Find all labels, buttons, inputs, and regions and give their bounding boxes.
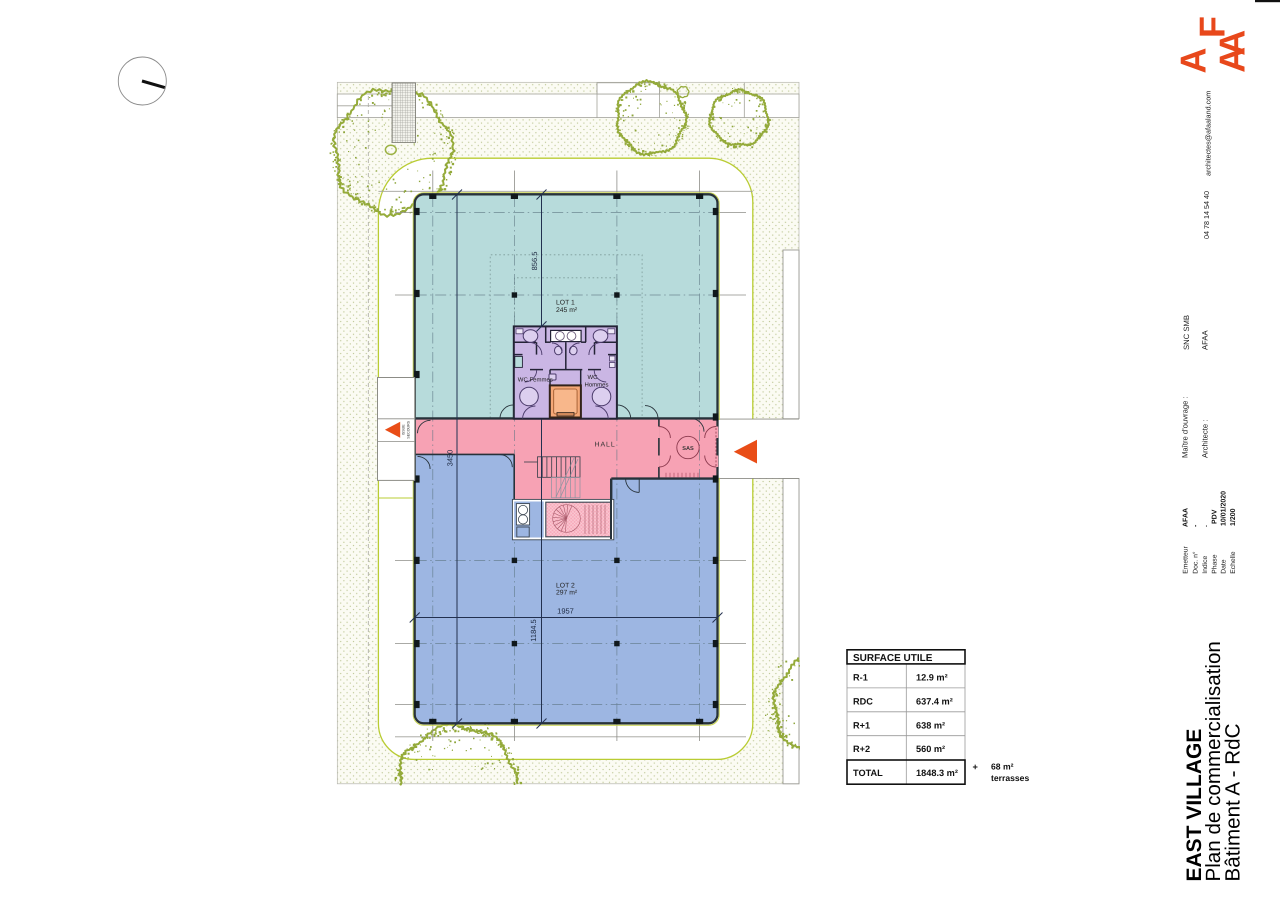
svg-text:Indice: Indice [1202,555,1209,573]
svg-text:SNC SMB: SNC SMB [1182,315,1191,350]
svg-text:PDV: PDV [1211,509,1218,524]
svg-text:245 m²: 245 m² [556,307,578,314]
svg-text:SAS: SAS [682,446,694,452]
svg-text:Phase: Phase [1211,554,1218,573]
svg-text:Hommes: Hommes [585,382,609,389]
svg-text:A: A [1173,48,1214,74]
svg-text:AFAA: AFAA [1201,329,1210,350]
svg-text:1/200: 1/200 [1229,508,1237,526]
svg-text:terrasses: terrasses [991,773,1029,783]
svg-text:WC: WC [588,374,599,381]
svg-text:-: - [1193,524,1200,527]
svg-text:560 m²: 560 m² [916,744,945,754]
svg-text:+: + [973,762,978,772]
svg-text:04 78 14 54 40: 04 78 14 54 40 [1202,191,1211,239]
svg-text:637.4 m²: 637.4 m² [916,696,953,706]
svg-text:Doc. n°: Doc. n° [1193,551,1200,574]
svg-text:ISSUE: ISSUE [402,424,406,435]
svg-text:12.9 m²: 12.9 m² [916,673,948,683]
svg-text:Maître d'ouvrage :: Maître d'ouvrage : [1181,396,1190,458]
svg-text:TOTAL: TOTAL [853,768,883,778]
svg-text:SECOURS: SECOURS [406,420,410,438]
svg-text:A: A [1211,47,1252,73]
svg-text:Date: Date [1221,559,1228,574]
svg-text:297 m²: 297 m² [556,590,578,597]
svg-text:856.5: 856.5 [530,252,539,271]
svg-text:R+1: R+1 [853,720,870,730]
svg-text:R+2: R+2 [853,744,870,754]
svg-text:LOT 2: LOT 2 [556,582,575,589]
svg-text:1184.5: 1184.5 [529,619,538,641]
svg-text:SURFACE UTILE: SURFACE UTILE [853,653,933,664]
svg-text:3450: 3450 [446,450,455,467]
svg-text:LOT 1: LOT 1 [556,300,575,307]
svg-text:Echelle: Echelle [1230,551,1237,574]
svg-text:1957: 1957 [557,607,574,616]
svg-text:.: . [1202,525,1209,527]
svg-text:Architecte :: Architecte : [1201,420,1210,458]
svg-text:WC Femmes: WC Femmes [518,377,553,384]
svg-text:architectes@afaaland.com: architectes@afaaland.com [1204,91,1213,176]
svg-text:Emetteur: Emetteur [1183,545,1190,573]
svg-text:10/01/2020: 10/01/2020 [1220,491,1228,526]
svg-text:R-1: R-1 [853,673,868,683]
svg-text:1848.3 m²: 1848.3 m² [916,768,958,778]
svg-text:68 m²: 68 m² [991,762,1014,772]
svg-text:Bâtiment A - RdC: Bâtiment A - RdC [1221,723,1244,881]
svg-text:AFAA: AFAA [1183,508,1190,527]
svg-text:638 m²: 638 m² [916,720,945,730]
svg-text:HALL: HALL [595,442,616,449]
svg-text:RDC: RDC [853,696,873,706]
